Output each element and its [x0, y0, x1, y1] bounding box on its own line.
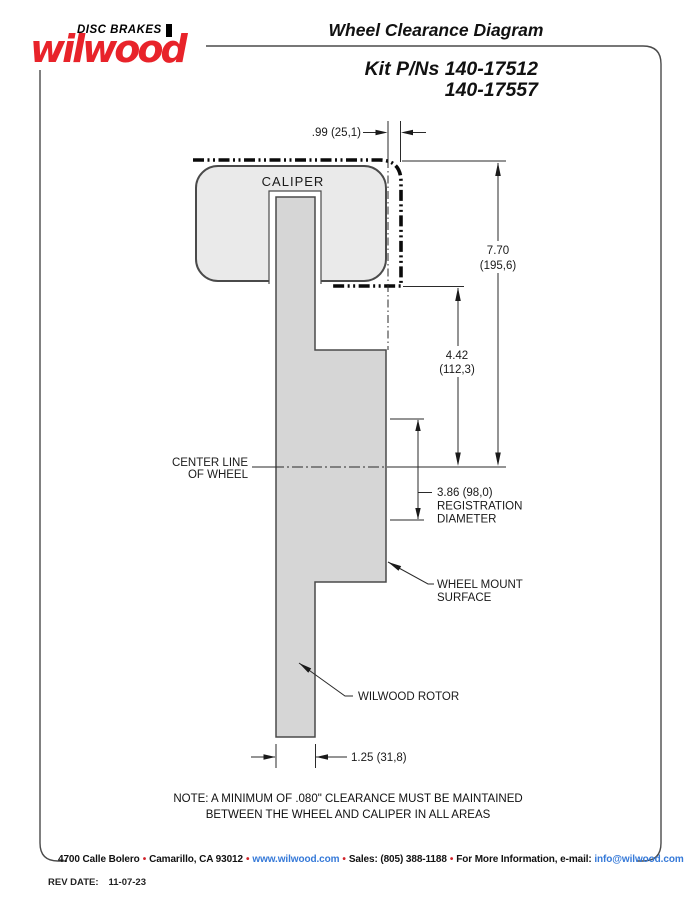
footer-bullet: •	[450, 854, 453, 865]
clearance-note-line2: BETWEEN THE WHEEL AND CALIPER IN ALL ARE…	[145, 807, 551, 823]
dim-mount-mm: (112,3)	[439, 364, 475, 376]
footer-bullet: •	[342, 854, 345, 865]
dim-registration-word2: DIAMETER	[437, 514, 496, 526]
footer-website-link[interactable]: www.wilwood.com	[252, 854, 339, 865]
rotor-callout: WILWOOD ROTOR	[299, 663, 459, 703]
dim-height-in: 7.70	[487, 245, 509, 257]
dim-registration-value: 3.86 (98,0)	[437, 487, 493, 499]
rotor-label: WILWOOD ROTOR	[358, 691, 459, 703]
footer-contact-line: 4700 Calle Bolero•Camarillo, CA 93012•ww…	[58, 854, 644, 865]
centerline-label-2: OF WHEEL	[188, 469, 249, 481]
dim-overhang-value: .99 (25,1)	[312, 127, 361, 139]
centerline-label-1: CENTER LINE	[172, 457, 248, 469]
dim-registration-word1: REGISTRATION	[437, 501, 522, 513]
footer-bullet: •	[143, 854, 146, 865]
clearance-note: NOTE: A MINIMUM OF .080" CLEARANCE MUST …	[145, 791, 551, 823]
dim-mount-to-center: 4.42 (112,3)	[403, 287, 484, 467]
footer-sales-phone: Sales: (805) 388-1188	[349, 854, 447, 865]
footer-email-link[interactable]: info@wilwood.com	[594, 854, 683, 865]
rev-date: REV DATE:11-07-23	[48, 877, 146, 888]
dim-rotor-width-value: 1.25 (31,8)	[351, 752, 407, 764]
clearance-note-line1: NOTE: A MINIMUM OF .080" CLEARANCE MUST …	[145, 791, 551, 807]
footer-address: 4700 Calle Bolero	[58, 854, 140, 865]
border-frame-left	[40, 70, 67, 861]
dim-registration-diameter: 3.86 (98,0) REGISTRATION DIAMETER	[390, 419, 522, 526]
wheel-mount-label-2: SURFACE	[437, 592, 492, 604]
footer-bullet: •	[246, 854, 249, 865]
footer-more-info: For More Information, e-mail:	[456, 854, 591, 865]
wheel-clearance-diagram: CALIPER .99 (25,1) 7.70 (195,6) 4.42 (11…	[0, 0, 700, 906]
wheel-mount-label-1: WHEEL MOUNT	[437, 579, 523, 591]
wheel-mount-callout: WHEEL MOUNT SURFACE	[388, 562, 523, 604]
footer-city: Camarillo, CA 93012	[149, 854, 243, 865]
caliper-label: CALIPER	[262, 174, 325, 189]
dim-rotor-width: 1.25 (31,8)	[251, 744, 407, 768]
rev-date-value: 11-07-23	[109, 877, 147, 888]
dim-mount-in: 4.42	[446, 350, 468, 362]
dim-height: 7.70 (195,6)	[402, 161, 516, 466]
rev-date-label: REV DATE:	[48, 877, 99, 888]
dim-height-mm: (195,6)	[480, 260, 517, 272]
